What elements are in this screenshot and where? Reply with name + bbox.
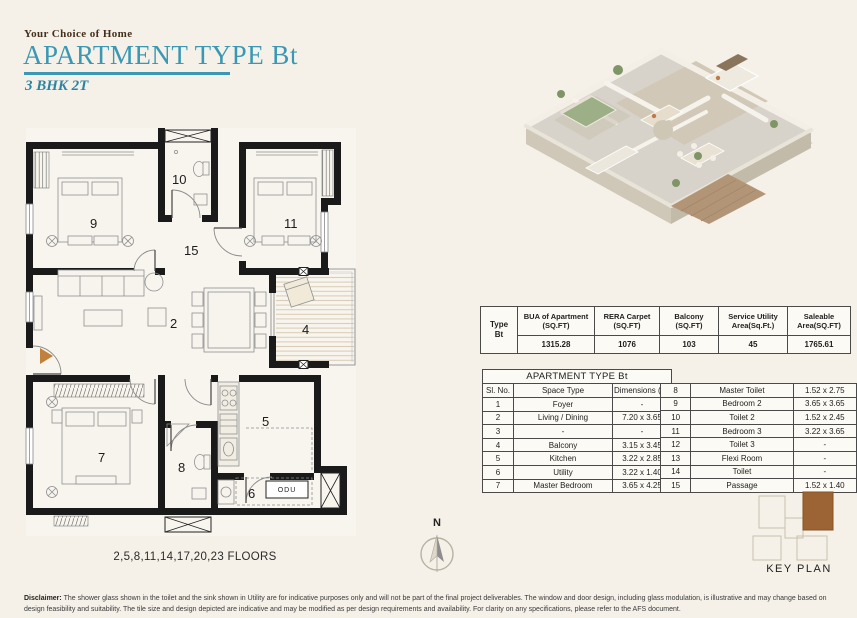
- table-row: 6Utility3.22 x 1.40: [483, 465, 672, 479]
- area-col-bua: BUA of Apartment (SQ.FT): [518, 307, 595, 336]
- area-value-balcony: 103: [660, 336, 719, 354]
- table-row: 11Bedroom 33.22 x 3.65: [661, 424, 857, 438]
- table-row: 7Master Bedroom3.65 x 4.25: [483, 479, 672, 493]
- room-label-bedroom2: 9: [90, 216, 97, 231]
- area-col-balcony: Balcony (SQ.FT): [660, 307, 719, 336]
- header-space-type: Space Type: [514, 384, 613, 398]
- table-row: 5Kitchen3.22 x 2.85: [483, 452, 672, 466]
- room-label-bedroom3: 11: [284, 216, 298, 231]
- area-value-saleable: 1765.61: [788, 336, 851, 354]
- table-row: 14Toilet-: [661, 465, 857, 479]
- table-row: 8Master Toilet1.52 x 2.75: [661, 384, 857, 398]
- title-underline: [24, 72, 230, 75]
- table-row: 10Toilet 21.52 x 2.45: [661, 411, 857, 425]
- key-plan-label: KEY PLAN: [745, 563, 853, 575]
- area-col-service: Service Utility Area(Sq.Ft.): [719, 307, 788, 336]
- area-value-bua: 1315.28: [518, 336, 595, 354]
- disclaimer-text: The shower glass shown in the toilet and…: [24, 595, 826, 613]
- brochure-page: { "header": { "brand": "Your Choice of H…: [0, 0, 857, 618]
- space-table-right: 8Master Toilet1.52 x 2.75 9Bedroom 23.65…: [660, 383, 857, 493]
- room-label-toilet2: 10: [172, 172, 186, 187]
- odu-label: ODU: [278, 487, 297, 494]
- space-table-title-row: APARTMENT TYPE Bt: [483, 370, 672, 384]
- table-row: 4Balcony3.15 x 3.45: [483, 438, 672, 452]
- disclaimer-label: Disclaimer:: [24, 595, 62, 602]
- room-label-balcony: 4: [302, 322, 309, 337]
- area-value-service: 45: [719, 336, 788, 354]
- room-label-utility: 6: [248, 486, 255, 501]
- area-value-rera: 1076: [595, 336, 660, 354]
- isometric-render: [466, 8, 856, 300]
- space-table-title: APARTMENT TYPE Bt: [483, 370, 672, 384]
- header-sl-no: Sl. No.: [483, 384, 514, 398]
- compass-icon: N: [406, 512, 468, 582]
- brand-tagline: Your Choice of Home: [24, 28, 133, 40]
- odu-unit: ODU: [266, 481, 308, 498]
- space-table-header-row: Sl. No. Space Type Dimensions (m): [483, 384, 672, 398]
- table-row: 12Toilet 3-: [661, 438, 857, 452]
- floor-plan: ODU 9 10 11 15 2: [6, 128, 364, 548]
- table-row: 13Flexi Room-: [661, 451, 857, 465]
- table-row: 9Bedroom 23.65 x 3.65: [661, 397, 857, 411]
- room-label-living: 2: [170, 316, 177, 331]
- page-subtitle: 3 BHK 2T: [25, 78, 88, 95]
- floors-note: 2,5,8,11,14,17,20,23 FLOORS: [30, 551, 360, 563]
- key-plan-highlight: [803, 492, 833, 530]
- room-label-master-toilet: 8: [178, 460, 185, 475]
- table-row: 2Living / Dining7.20 x 3.65: [483, 411, 672, 425]
- compass-north-label: N: [433, 517, 441, 529]
- disclaimer: Disclaimer: The shower glass shown in th…: [24, 594, 836, 615]
- key-plan: [747, 490, 851, 562]
- room-label-passage: 15: [184, 243, 198, 258]
- area-table-value-row: 1315.28 1076 103 45 1765.61: [481, 336, 851, 354]
- table-row: 1Foyer-: [483, 398, 672, 412]
- room-label-kitchen: 5: [262, 414, 269, 429]
- area-col-saleable: Saleable Area(SQ.FT): [788, 307, 851, 336]
- room-label-master-bedroom: 7: [98, 450, 105, 465]
- area-table: Type Bt BUA of Apartment (SQ.FT) RERA Ca…: [480, 306, 851, 354]
- table-row: 3--: [483, 425, 672, 439]
- space-table-left: APARTMENT TYPE Bt Sl. No. Space Type Dim…: [482, 369, 672, 493]
- area-type-label: Type Bt: [481, 307, 518, 354]
- area-table-header-row: Type Bt BUA of Apartment (SQ.FT) RERA Ca…: [481, 307, 851, 336]
- page-title: APARTMENT TYPE Bt: [23, 40, 298, 71]
- area-col-rera: RERA Carpet (SQ.FT): [595, 307, 660, 336]
